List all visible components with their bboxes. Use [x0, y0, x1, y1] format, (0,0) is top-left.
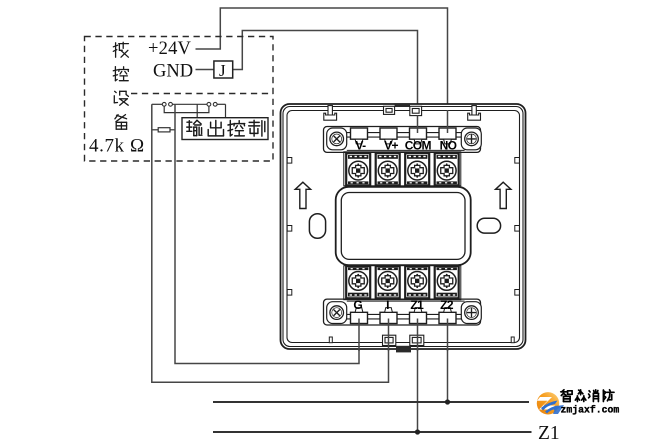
svg-text:Z1: Z1 [538, 423, 560, 444]
svg-text:COM: COM [405, 138, 432, 152]
svg-text:zmjaxf.com: zmjaxf.com [561, 405, 620, 416]
svg-text:J: J [219, 61, 226, 80]
svg-text:V-: V- [355, 138, 366, 152]
svg-text:4.7k Ω: 4.7k Ω [89, 136, 145, 157]
svg-text:NO: NO [440, 138, 457, 152]
svg-text:G: G [353, 298, 362, 312]
svg-text:V+: V+ [384, 138, 398, 152]
svg-text:Z1: Z1 [410, 298, 424, 312]
svg-text:I: I [386, 298, 389, 312]
svg-text:Z2: Z2 [440, 298, 454, 312]
svg-text:+24V: +24V [148, 39, 192, 59]
svg-text:GND: GND [153, 62, 193, 82]
